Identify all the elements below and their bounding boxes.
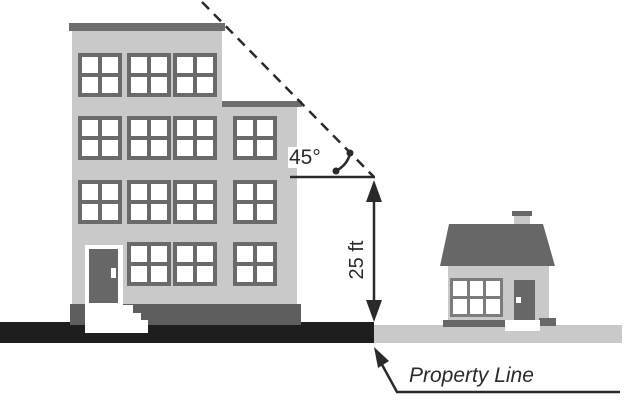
annotation-overlay xyxy=(0,0,625,413)
angle-label: 45° xyxy=(288,147,322,168)
property-line-label: Property Line xyxy=(409,365,534,386)
angle-arc-dot-icon xyxy=(347,150,354,157)
angle-arc-dot-icon xyxy=(333,168,340,175)
arrow-up-left-icon xyxy=(374,347,389,368)
arrow-down-icon xyxy=(366,300,382,322)
height-label: 25 ft xyxy=(347,236,367,284)
arrow-up-icon xyxy=(366,180,382,202)
diagram-canvas: 45° 25 ft Property Line xyxy=(0,0,625,413)
